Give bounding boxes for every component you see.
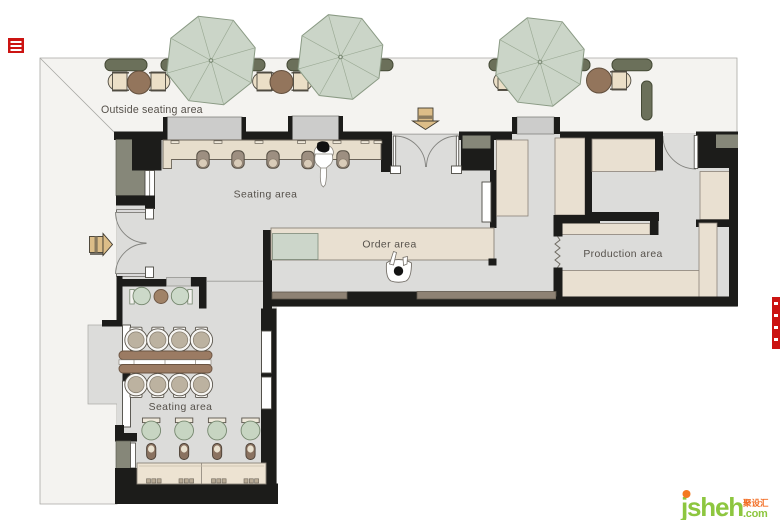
svg-text:Seating area: Seating area (149, 402, 213, 413)
svg-text:聚设汇: 聚设汇 (742, 498, 769, 508)
svg-text:Order area: Order area (362, 240, 416, 251)
svg-text:Seating area: Seating area (234, 190, 298, 201)
svg-text:.com: .com (743, 508, 768, 520)
svg-text:Outside seating area: Outside seating area (101, 104, 203, 116)
svg-text:Production area: Production area (583, 249, 662, 260)
